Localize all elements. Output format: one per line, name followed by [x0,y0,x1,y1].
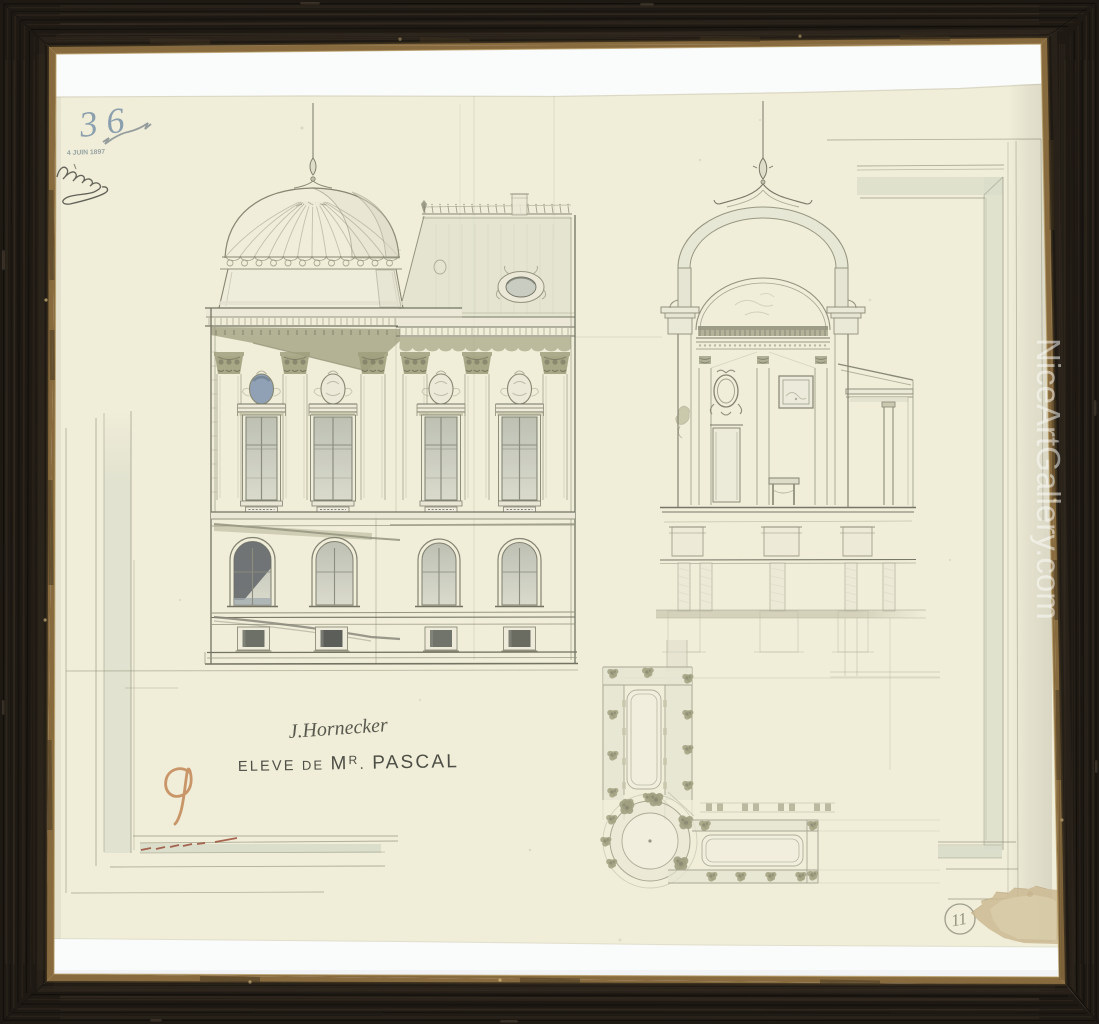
svg-text:3 6: 3 6 [76,100,127,145]
svg-text:NiceArtGallery.com: NiceArtGallery.com [1030,338,1067,620]
svg-text:11: 11 [950,909,969,930]
svg-text:4 JUIN 1897: 4 JUIN 1897 [67,149,106,157]
